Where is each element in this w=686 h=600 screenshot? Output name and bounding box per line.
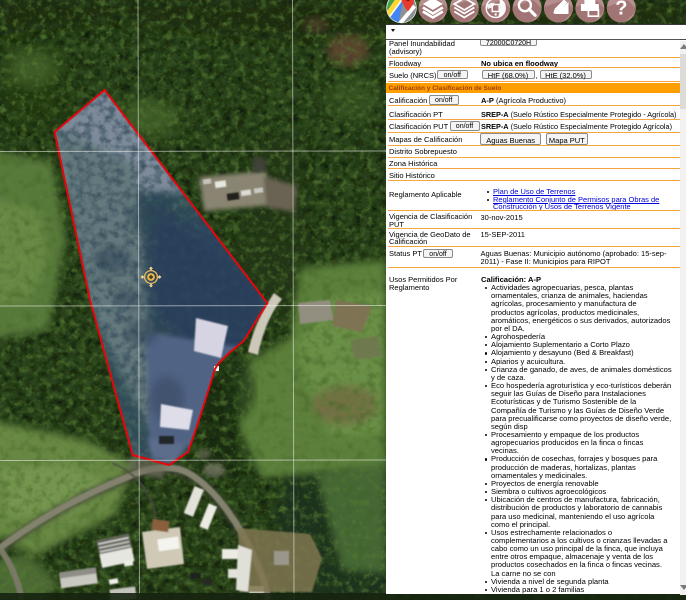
- svg-text:?: ?: [615, 0, 627, 20]
